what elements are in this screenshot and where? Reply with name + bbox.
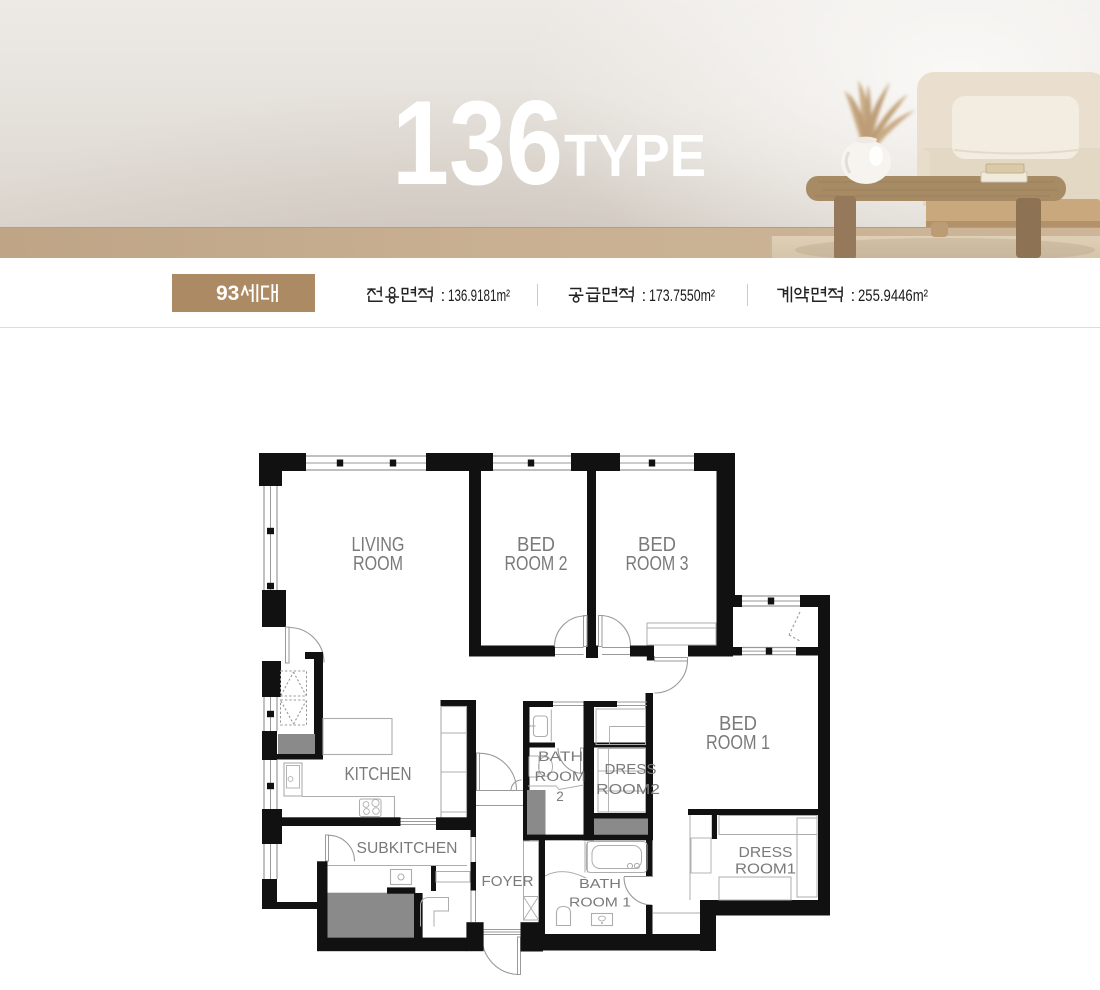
svg-text:136: 136 [392,76,563,200]
svg-text:FOYER: FOYER [482,873,534,890]
svg-text:136.9181m²: 136.9181m² [448,286,510,305]
svg-text::: : [642,286,647,305]
svg-text:KITCHEN: KITCHEN [345,764,412,784]
svg-text:ROOM: ROOM [535,769,586,784]
svg-text:ROOM 2: ROOM 2 [505,553,568,575]
svg-text:BATH: BATH [579,876,621,891]
svg-text::: : [441,286,446,305]
svg-text:BATH: BATH [538,749,583,764]
svg-text:ROOM: ROOM [353,553,403,575]
svg-text::: : [851,286,856,305]
svg-text:255.9446m²: 255.9446m² [858,286,928,305]
svg-text:173.7550m²: 173.7550m² [649,286,715,305]
svg-text:2: 2 [556,789,564,804]
svg-text:TYPE: TYPE [564,123,706,189]
svg-text:93: 93 [216,282,239,305]
svg-text:ROOM 1: ROOM 1 [569,895,631,910]
svg-text:DRESS: DRESS [739,844,793,861]
svg-text:ROOM2: ROOM2 [596,782,660,798]
svg-text:DRESS: DRESS [605,762,657,778]
svg-text:SUBKITCHEN: SUBKITCHEN [357,840,458,857]
svg-text:ROOM 3: ROOM 3 [626,553,689,575]
svg-text:ROOM 1: ROOM 1 [706,732,770,754]
svg-text:ROOM1: ROOM1 [735,861,796,878]
